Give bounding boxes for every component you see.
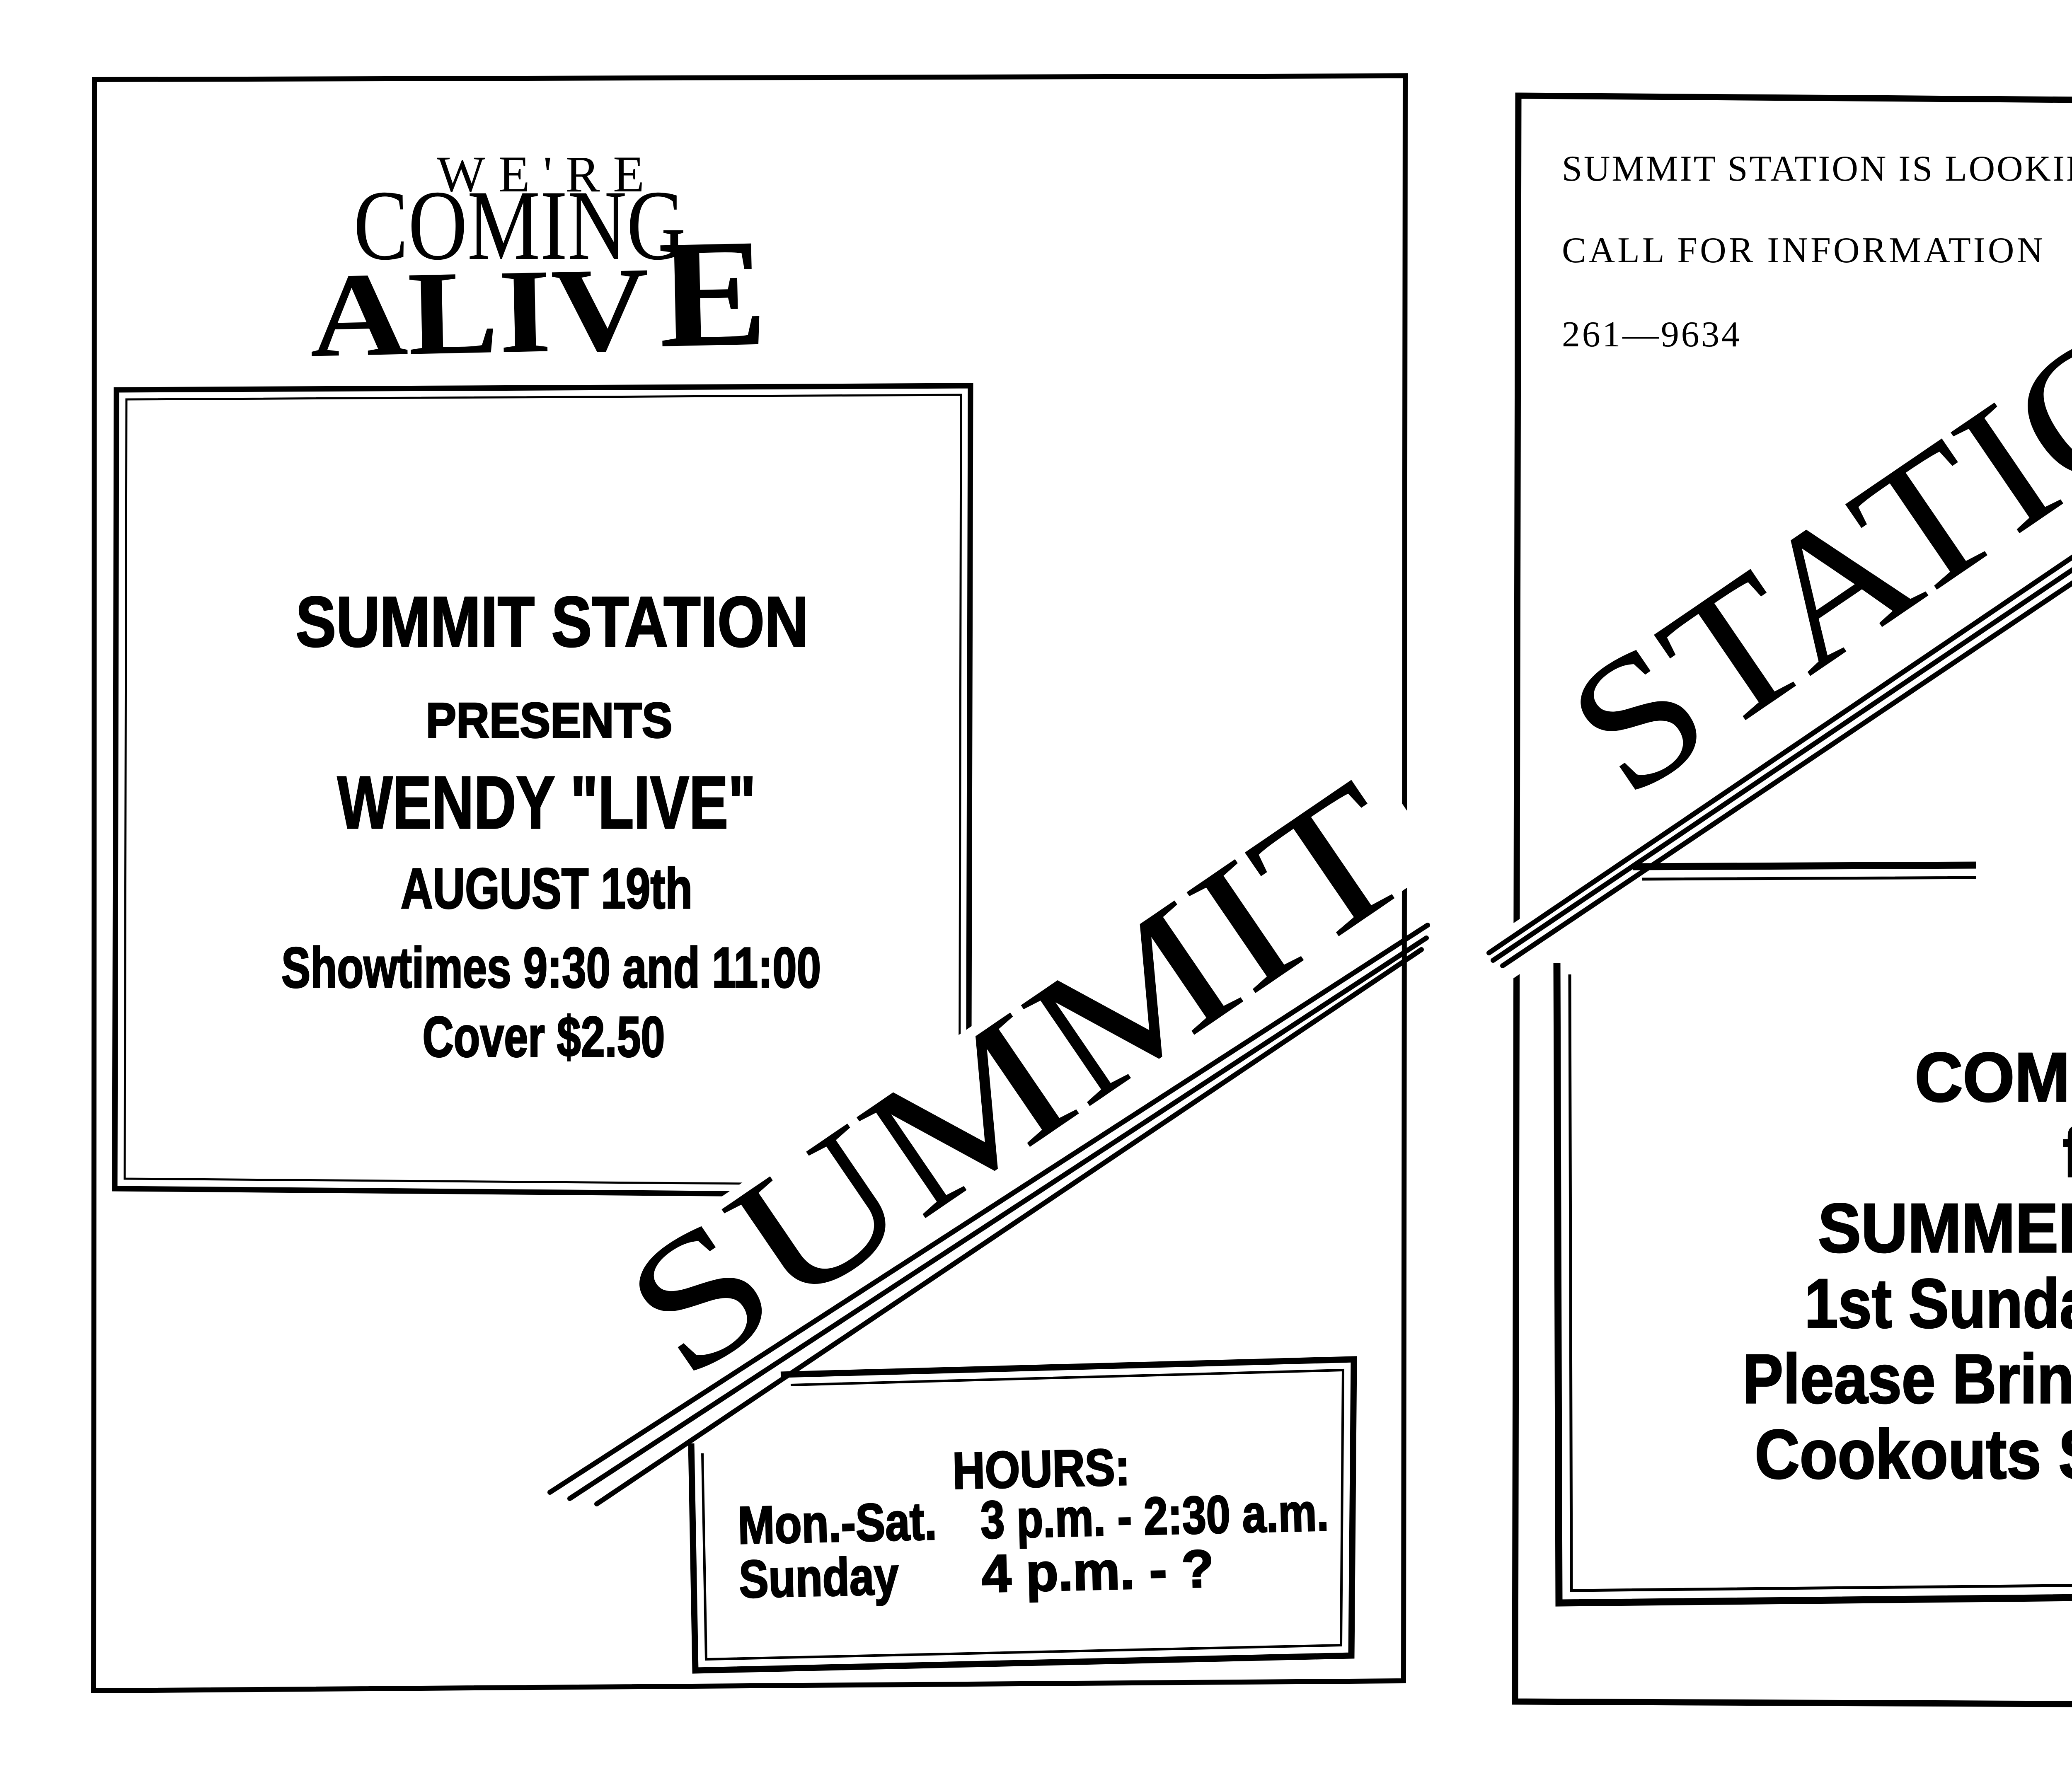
svg-text:E: E — [657, 207, 769, 380]
svg-text:261—9634: 261—9634 — [1562, 314, 1740, 355]
svg-text:Sunday: Sunday — [738, 1546, 899, 1609]
svg-text:Please Bring a Covered Dish: Please Bring a Covered Dish — [1743, 1340, 2072, 1418]
svg-text:AUGUST 19th: AUGUST 19th — [401, 857, 692, 921]
svg-text:SUMMIT STATION: SUMMIT STATION — [296, 582, 808, 662]
svg-text:SUMMER COOKOUTS: SUMMER COOKOUTS — [1818, 1189, 2072, 1267]
svg-text:COME JOIN US: COME JOIN US — [1915, 1038, 2072, 1116]
svg-text:Showtimes 9:30 and 11:00: Showtimes 9:30 and 11:00 — [281, 936, 821, 1000]
svg-text:ALIV: ALIV — [308, 242, 651, 382]
svg-text:for our: for our — [2063, 1114, 2072, 1192]
svg-text:Cover $2.50: Cover $2.50 — [423, 1005, 665, 1069]
svg-text:PRESENTS: PRESENTS — [426, 693, 673, 748]
svg-text:Mon.-Sat.: Mon.-Sat. — [737, 1491, 937, 1555]
svg-text:1st Sunday of the month: 1st Sunday of the month — [1805, 1264, 2072, 1342]
svg-text:3 p.m. - 2:30 a.m.: 3 p.m. - 2:30 a.m. — [980, 1483, 1329, 1550]
svg-text:WENDY "LIVE": WENDY "LIVE" — [337, 761, 756, 844]
svg-text:4 p.m. - ?: 4 p.m. - ? — [981, 1539, 1215, 1604]
svg-text:Cookouts Start at 5:00 p.m.: Cookouts Start at 5:00 p.m. — [1755, 1415, 2072, 1493]
